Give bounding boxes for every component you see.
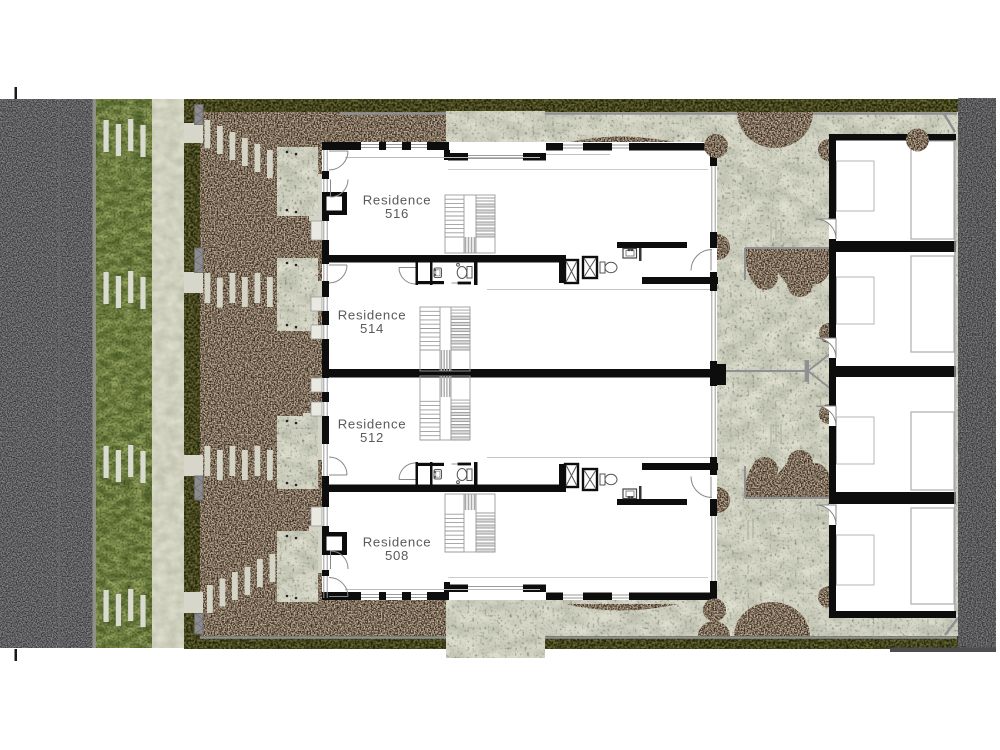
- svg-text:514: 514: [360, 321, 384, 336]
- svg-text:508: 508: [385, 548, 409, 563]
- svg-text:516: 516: [385, 206, 409, 221]
- svg-text:512: 512: [360, 430, 384, 445]
